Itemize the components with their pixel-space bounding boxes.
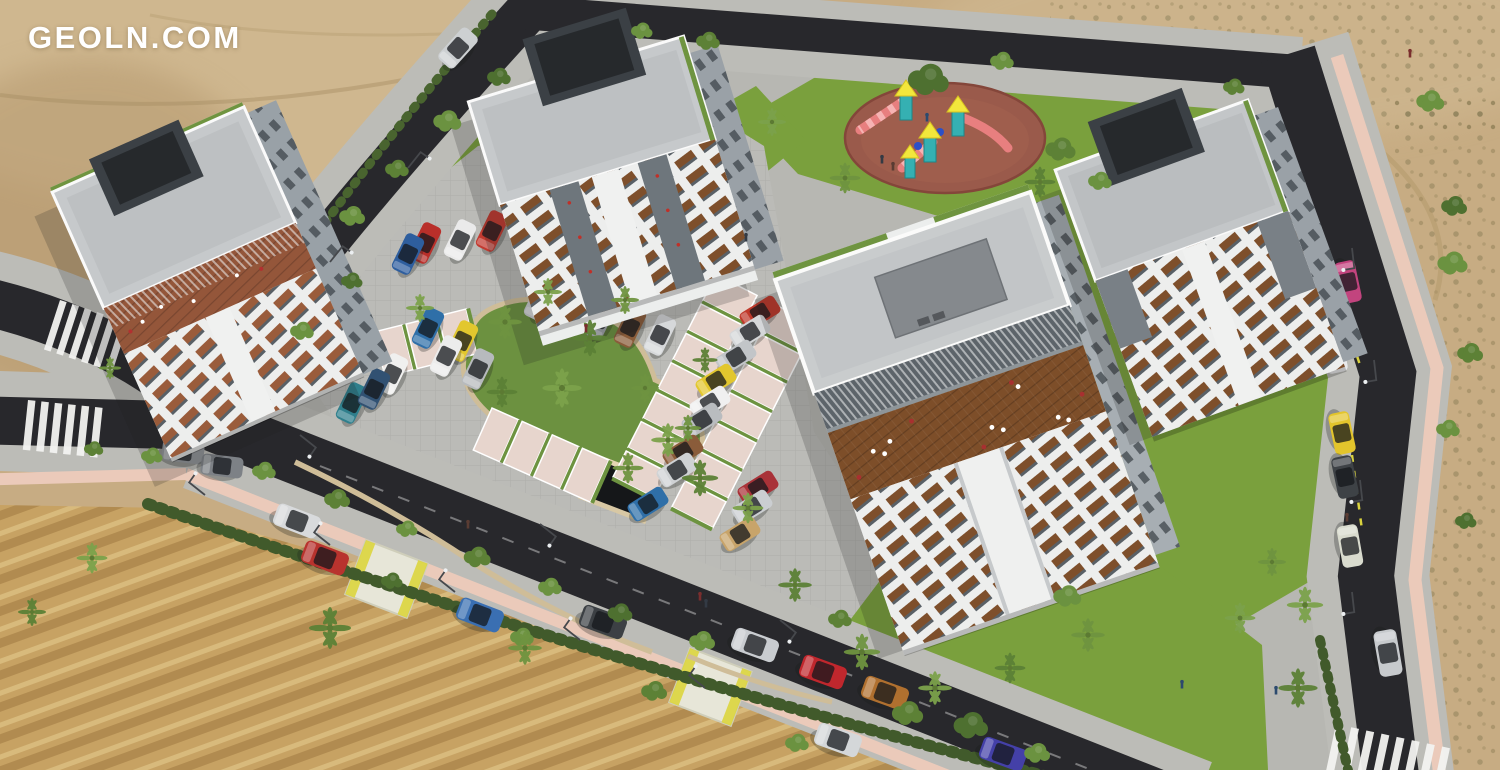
person	[1274, 686, 1278, 695]
person	[1345, 513, 1349, 522]
person	[1408, 49, 1412, 58]
person	[891, 162, 895, 171]
person	[880, 155, 884, 164]
person	[698, 592, 702, 601]
person	[466, 520, 470, 529]
person	[744, 233, 748, 242]
person	[925, 113, 929, 122]
watermark-logo: GEOLN.COM	[28, 20, 242, 56]
aerial-render: GEOLN.COM	[0, 0, 1500, 770]
play-post-blue-2	[914, 142, 922, 150]
person	[584, 324, 588, 333]
person	[1180, 680, 1184, 689]
person	[704, 599, 708, 608]
scene-canvas	[0, 0, 1500, 770]
